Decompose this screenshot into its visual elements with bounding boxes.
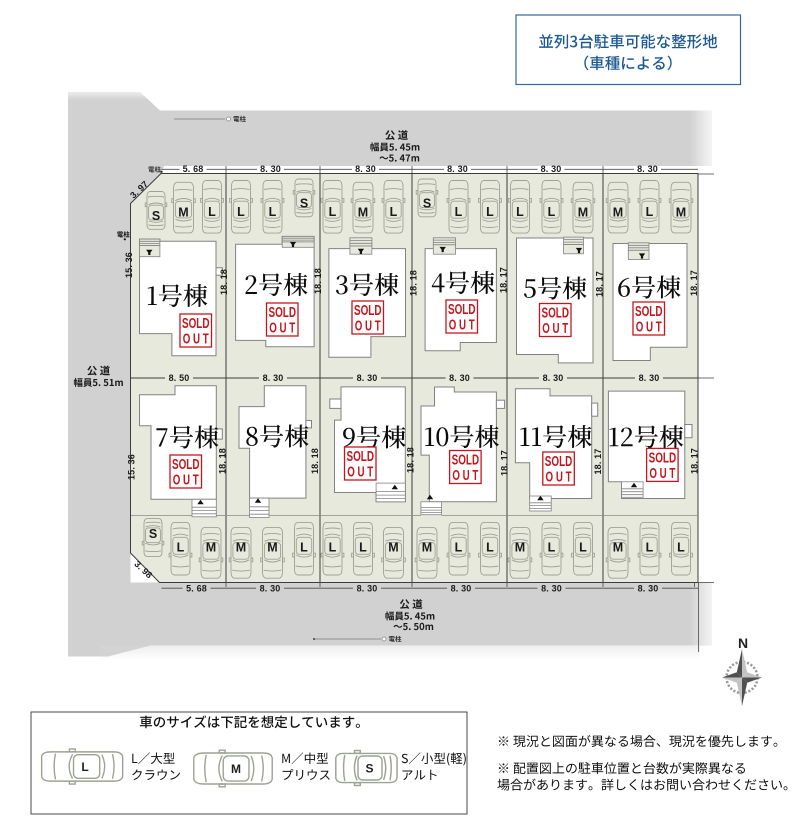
svg-text:M: M xyxy=(613,541,623,555)
svg-text:18. 17: 18. 17 xyxy=(690,448,700,474)
svg-text:18. 18: 18. 18 xyxy=(218,448,228,474)
svg-text:L: L xyxy=(329,541,337,555)
svg-text:8. 30: 8. 30 xyxy=(637,164,658,174)
svg-text:5. 68: 5. 68 xyxy=(183,164,204,174)
svg-text:M: M xyxy=(267,541,277,555)
svg-text:M: M xyxy=(613,206,623,220)
svg-text:L: L xyxy=(516,205,524,219)
svg-text:SOLD: SOLD xyxy=(172,457,200,473)
svg-text:M: M xyxy=(676,206,686,220)
svg-text:L: L xyxy=(359,541,367,555)
svg-text:8. 50: 8. 50 xyxy=(169,373,190,383)
svg-text:L: L xyxy=(548,205,556,219)
svg-text:8. 30: 8. 30 xyxy=(355,164,376,174)
svg-text:M: M xyxy=(578,206,588,220)
svg-text:O U T: O U T xyxy=(542,321,568,337)
svg-text:SOLD: SOLD xyxy=(542,306,570,322)
svg-text:8. 30: 8. 30 xyxy=(260,583,281,593)
svg-text:8. 30: 8. 30 xyxy=(543,373,564,383)
svg-text:O U T: O U T xyxy=(183,331,209,347)
svg-text:18. 17: 18. 17 xyxy=(689,270,699,296)
svg-text:SOLD: SOLD xyxy=(545,454,573,470)
svg-text:8. 30: 8. 30 xyxy=(447,164,468,174)
svg-text:S: S xyxy=(149,527,157,541)
svg-text:18. 18: 18. 18 xyxy=(406,447,416,473)
svg-text:SOLD: SOLD xyxy=(448,302,476,318)
svg-text:M: M xyxy=(422,541,432,555)
svg-text:L: L xyxy=(646,541,654,555)
svg-text:M: M xyxy=(358,206,368,220)
svg-text:SOLD: SOLD xyxy=(347,449,375,465)
svg-text:8. 30: 8. 30 xyxy=(639,373,660,383)
svg-text:S: S xyxy=(152,209,160,223)
svg-text:S: S xyxy=(423,197,431,211)
svg-text:L: L xyxy=(269,205,277,219)
svg-text:L: L xyxy=(646,205,654,219)
svg-text:L: L xyxy=(677,541,685,555)
svg-text:S: S xyxy=(365,762,373,776)
svg-text:18. 17: 18. 17 xyxy=(595,271,605,297)
svg-text:L: L xyxy=(579,541,587,555)
svg-text:15. 36: 15. 36 xyxy=(127,454,137,480)
svg-text:5. 68: 5. 68 xyxy=(186,583,207,593)
svg-text:M: M xyxy=(231,762,241,776)
svg-text:L: L xyxy=(486,205,494,219)
svg-text:8. 30: 8. 30 xyxy=(449,373,470,383)
svg-text:L: L xyxy=(329,205,337,219)
svg-text:18. 18: 18. 18 xyxy=(313,268,323,294)
svg-text:M: M xyxy=(178,206,188,220)
svg-text:8. 30: 8. 30 xyxy=(357,373,378,383)
svg-text:M: M xyxy=(515,541,525,555)
svg-text:L: L xyxy=(177,541,185,555)
svg-text:SOLD: SOLD xyxy=(649,451,677,467)
svg-text:M: M xyxy=(236,541,246,555)
svg-text:O U T: O U T xyxy=(636,319,662,335)
svg-text:L: L xyxy=(81,760,88,774)
svg-text:L: L xyxy=(455,541,463,555)
svg-text:8. 30: 8. 30 xyxy=(451,583,472,593)
svg-text:O U T: O U T xyxy=(649,466,675,482)
svg-text:18. 17: 18. 17 xyxy=(500,450,510,476)
svg-text:L: L xyxy=(300,541,308,555)
svg-text:SOLD: SOLD xyxy=(182,316,210,332)
svg-text:L: L xyxy=(486,541,494,555)
svg-text:O U T: O U T xyxy=(347,464,373,480)
svg-text:L: L xyxy=(548,541,556,555)
svg-text:L: L xyxy=(390,205,398,219)
svg-text:O U T: O U T xyxy=(449,317,475,333)
svg-text:M: M xyxy=(388,541,398,555)
svg-text:O U T: O U T xyxy=(173,472,199,488)
svg-text:SOLD: SOLD xyxy=(354,303,382,319)
svg-text:18. 18: 18. 18 xyxy=(409,270,419,296)
svg-text:M: M xyxy=(206,541,216,555)
svg-text:SOLD: SOLD xyxy=(452,453,480,469)
svg-text:O U T: O U T xyxy=(269,320,295,336)
svg-text:8. 30: 8. 30 xyxy=(638,583,659,593)
svg-text:O U T: O U T xyxy=(546,469,572,485)
svg-text:L: L xyxy=(455,205,463,219)
svg-text:18. 17: 18. 17 xyxy=(499,267,509,293)
svg-text:O U T: O U T xyxy=(355,318,381,334)
svg-text:SOLD: SOLD xyxy=(269,305,297,321)
svg-text:L: L xyxy=(208,205,216,219)
svg-text:18. 17: 18. 17 xyxy=(593,449,603,475)
svg-text:S: S xyxy=(300,197,308,211)
svg-text:8. 30: 8. 30 xyxy=(357,583,378,593)
svg-text:15. 36: 15. 36 xyxy=(124,252,134,278)
svg-text:8. 30: 8. 30 xyxy=(260,164,281,174)
svg-text:18. 18: 18. 18 xyxy=(219,269,229,295)
svg-text:L: L xyxy=(237,205,245,219)
svg-text:8. 30: 8. 30 xyxy=(541,583,562,593)
svg-text:SOLD: SOLD xyxy=(635,304,663,320)
svg-text:8. 30: 8. 30 xyxy=(541,164,562,174)
svg-text:18. 18: 18. 18 xyxy=(310,448,320,474)
svg-text:O U T: O U T xyxy=(452,468,478,484)
svg-text:8. 30: 8. 30 xyxy=(263,373,284,383)
svg-text:N: N xyxy=(738,635,748,651)
